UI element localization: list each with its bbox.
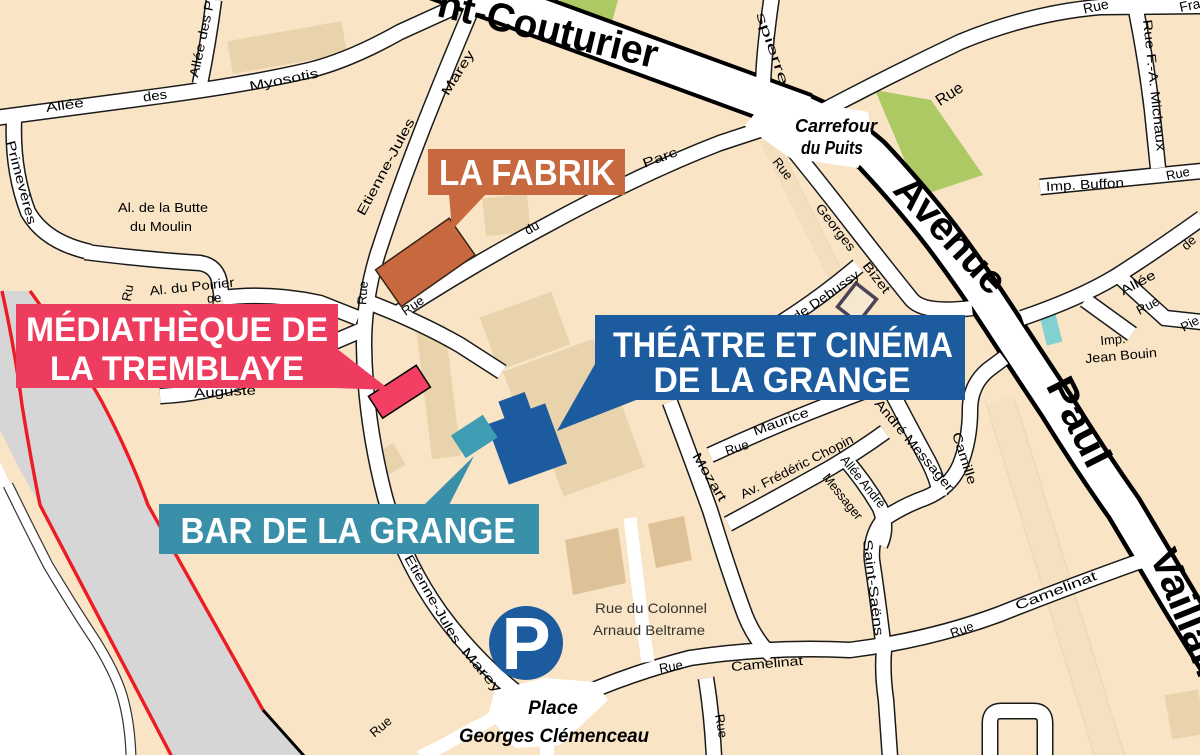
svg-text:ge: ge bbox=[206, 290, 222, 306]
svg-text:BAR DE LA GRANGE: BAR DE LA GRANGE bbox=[181, 510, 516, 551]
svg-text:LA TREMBLAYE: LA TREMBLAYE bbox=[50, 350, 304, 388]
svg-text:Rue du Colonnel: Rue du Colonnel bbox=[595, 600, 707, 616]
svg-text:Imp.: Imp. bbox=[1100, 331, 1127, 348]
svg-text:LA FABRIK: LA FABRIK bbox=[439, 152, 615, 193]
svg-text:Al. de la Butte: Al. de la Butte bbox=[118, 200, 208, 215]
svg-text:Ru: Ru bbox=[119, 283, 137, 302]
svg-text:Arnaud Beltrame: Arnaud Beltrame bbox=[593, 622, 705, 638]
svg-text:DE LA GRANGE: DE LA GRANGE bbox=[654, 361, 911, 400]
svg-text:Rue: Rue bbox=[354, 281, 371, 306]
svg-text:du Puits: du Puits bbox=[801, 138, 863, 158]
svg-text:MÉDIATHÈQUE DE: MÉDIATHÈQUE DE bbox=[26, 311, 328, 349]
svg-text:du Moulin: du Moulin bbox=[130, 219, 192, 234]
svg-text:THÉÂTRE ET CINÉMA: THÉÂTRE ET CINÉMA bbox=[613, 325, 953, 365]
svg-text:Carrefour: Carrefour bbox=[795, 116, 878, 136]
svg-text:Place: Place bbox=[528, 698, 578, 719]
svg-text:P: P bbox=[501, 602, 550, 685]
svg-text:Georges Clémenceau: Georges Clémenceau bbox=[459, 726, 649, 747]
